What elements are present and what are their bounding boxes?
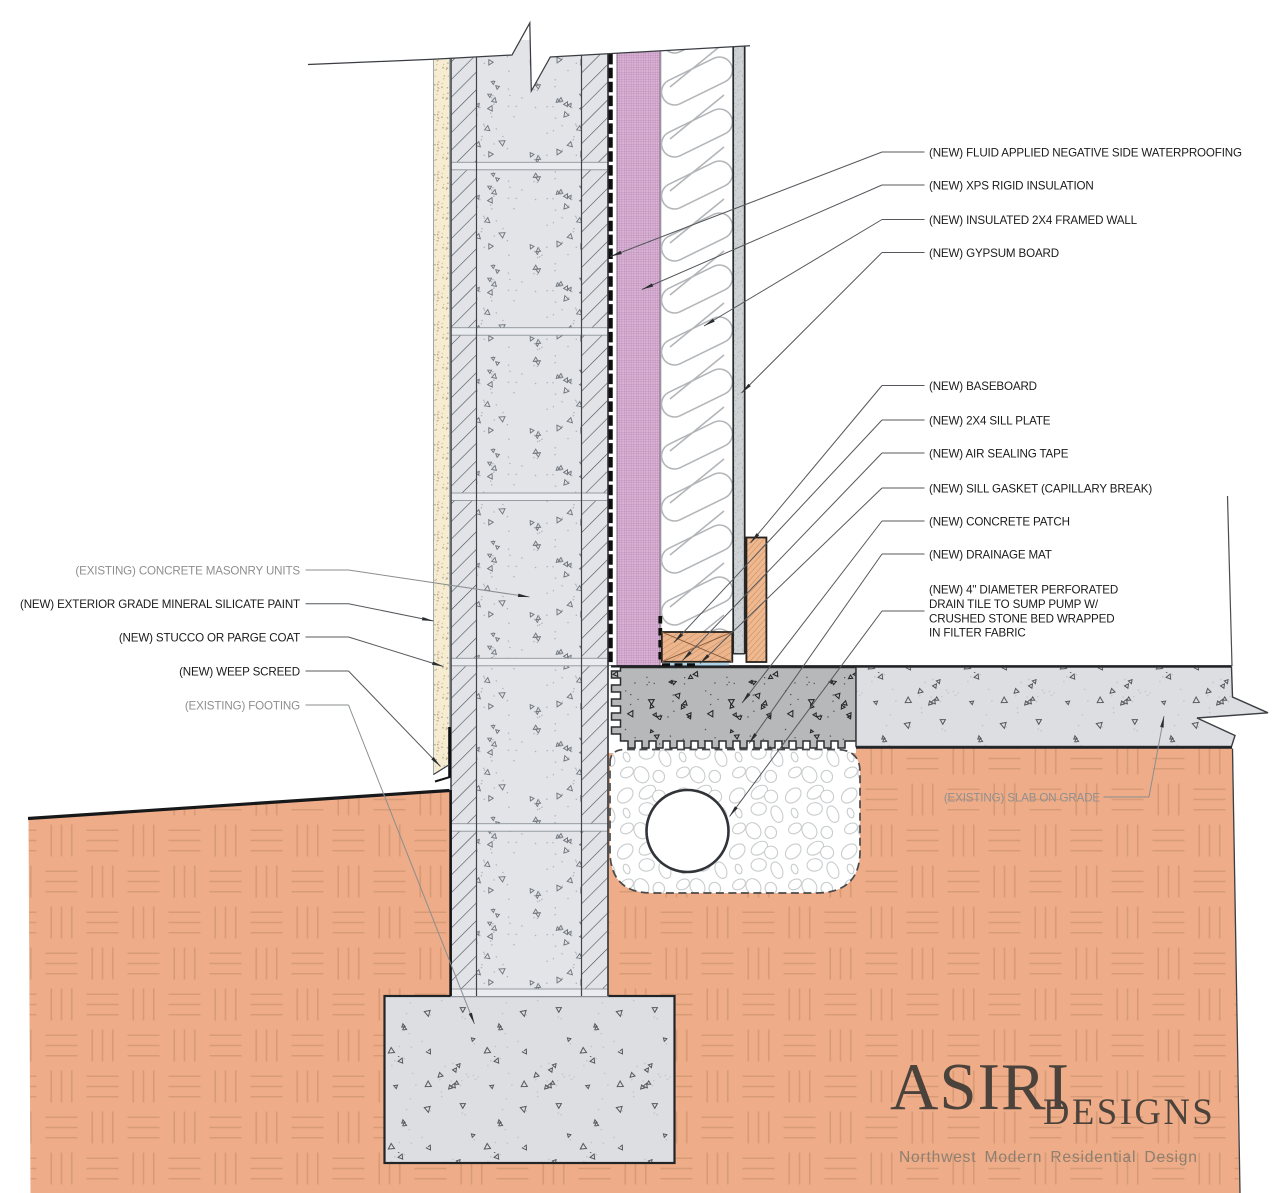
svg-text:(NEW) SILL GASKET (CAPILLARY B: (NEW) SILL GASKET (CAPILLARY BREAK) (929, 482, 1152, 495)
svg-text:Northwest Modern Residential D: Northwest Modern Residential Design (899, 1149, 1198, 1166)
svg-text:DRAIN TILE TO SUMP PUMP W/: DRAIN TILE TO SUMP PUMP W/ (929, 598, 1099, 611)
svg-text:(EXISTING) FOOTING: (EXISTING) FOOTING (185, 699, 300, 712)
svg-text:(NEW) 4" DIAMETER PERFORATED: (NEW) 4" DIAMETER PERFORATED (929, 584, 1118, 597)
svg-text:(NEW) FLUID APPLIED NEGATIVE S: (NEW) FLUID APPLIED NEGATIVE SIDE WATERP… (929, 146, 1242, 159)
svg-text:(EXISTING) SLAB ON GRADE: (EXISTING) SLAB ON GRADE (944, 791, 1101, 804)
svg-text:IN FILTER FABRIC: IN FILTER FABRIC (929, 627, 1026, 640)
svg-text:(EXISTING) CONCRETE MASONRY UN: (EXISTING) CONCRETE MASONRY UNITS (75, 564, 300, 577)
svg-text:(NEW) DRAINAGE MAT: (NEW) DRAINAGE MAT (929, 548, 1052, 561)
svg-text:CRUSHED STONE BED WRAPPED: CRUSHED STONE BED WRAPPED (929, 612, 1114, 625)
svg-text:(NEW) GYPSUM BOARD: (NEW) GYPSUM BOARD (929, 247, 1059, 260)
svg-text:(NEW) XPS RIGID INSULATION: (NEW) XPS RIGID INSULATION (929, 179, 1094, 192)
svg-text:DESIGNS: DESIGNS (1043, 1091, 1215, 1132)
svg-text:(NEW) INSULATED 2X4 FRAMED WAL: (NEW) INSULATED 2X4 FRAMED WALL (929, 214, 1138, 227)
svg-text:(NEW) EXTERIOR GRADE MINERAL S: (NEW) EXTERIOR GRADE MINERAL SILICATE PA… (20, 598, 300, 611)
svg-text:(NEW) STUCCO OR PARGE COAT: (NEW) STUCCO OR PARGE COAT (119, 631, 300, 644)
svg-text:(NEW) CONCRETE PATCH: (NEW) CONCRETE PATCH (929, 515, 1070, 528)
svg-text:(NEW) AIR SEALING TAPE: (NEW) AIR SEALING TAPE (929, 447, 1069, 460)
svg-text:(NEW) 2X4 SILL PLATE: (NEW) 2X4 SILL PLATE (929, 414, 1051, 427)
svg-text:(NEW) WEEP SCREED: (NEW) WEEP SCREED (179, 665, 300, 678)
svg-text:(NEW) BASEBOARD: (NEW) BASEBOARD (929, 380, 1037, 393)
